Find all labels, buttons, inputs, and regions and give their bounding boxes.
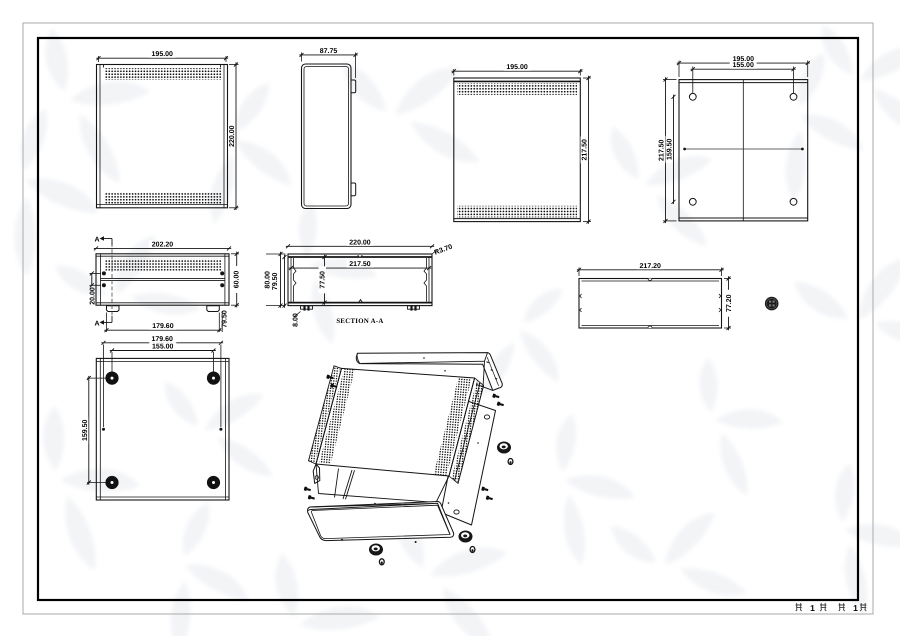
svg-text:217.50: 217.50 <box>582 139 589 161</box>
svg-text:217.20: 217.20 <box>640 263 662 270</box>
svg-text:A: A <box>94 237 99 244</box>
svg-text:80.00: 80.00 <box>265 271 272 289</box>
svg-text:A: A <box>94 321 99 328</box>
svg-text:8.00: 8.00 <box>293 313 300 327</box>
svg-text:220.00: 220.00 <box>229 125 236 147</box>
svg-text:195.00: 195.00 <box>506 64 528 71</box>
svg-text:20.00: 20.00 <box>90 287 97 305</box>
svg-text:155.00: 155.00 <box>732 62 754 69</box>
svg-text:155.00: 155.00 <box>152 344 174 351</box>
svg-text:1: 1 <box>853 603 858 613</box>
svg-text:159.50: 159.50 <box>82 419 89 441</box>
svg-text:77.20: 77.20 <box>726 294 733 312</box>
svg-text:77.50: 77.50 <box>320 271 327 289</box>
svg-text:60.00: 60.00 <box>234 271 241 289</box>
svg-text:217.50: 217.50 <box>659 139 666 161</box>
svg-text:179.60: 179.60 <box>152 323 174 330</box>
svg-text:179.60: 179.60 <box>151 336 173 343</box>
svg-text:79.50: 79.50 <box>272 272 279 290</box>
svg-text:SECTION A-A: SECTION A-A <box>336 318 383 325</box>
svg-text:79.50: 79.50 <box>222 310 229 328</box>
svg-text:87.75: 87.75 <box>320 48 338 55</box>
svg-text:220.00: 220.00 <box>349 239 371 246</box>
svg-text:195.00: 195.00 <box>152 51 174 58</box>
svg-text:217.50: 217.50 <box>349 261 371 268</box>
svg-text:159.50: 159.50 <box>667 138 674 160</box>
svg-text:202.20: 202.20 <box>152 241 174 248</box>
svg-text:1: 1 <box>810 603 815 613</box>
